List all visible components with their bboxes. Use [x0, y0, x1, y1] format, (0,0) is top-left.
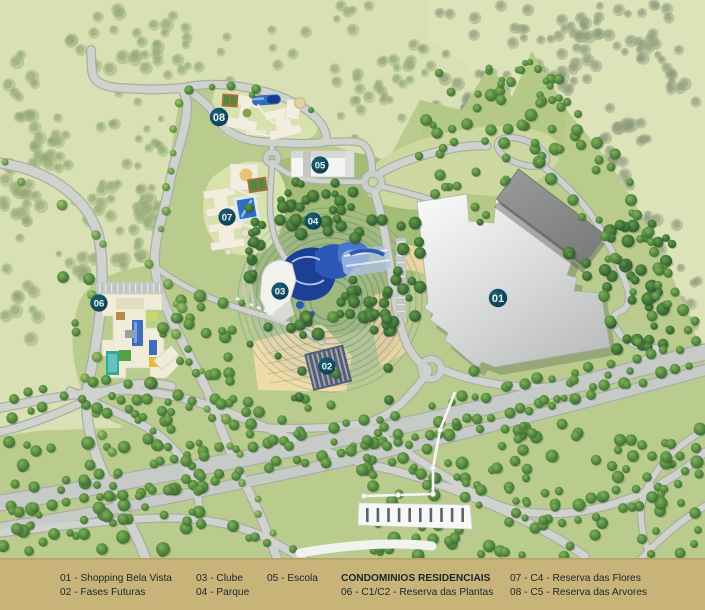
- svg-text:02: 02: [322, 361, 333, 372]
- svg-text:01: 01: [492, 293, 504, 305]
- svg-text:08 - C5 - Reserva das Arvores: 08 - C5 - Reserva das Arvores: [510, 587, 647, 598]
- svg-text:CONDOMINIOS RESIDENCIAIS: CONDOMINIOS RESIDENCIAIS: [341, 573, 491, 584]
- svg-text:03: 03: [275, 286, 286, 297]
- svg-text:06: 06: [94, 298, 105, 309]
- svg-text:07: 07: [222, 212, 233, 223]
- svg-text:05: 05: [315, 160, 326, 171]
- svg-text:07 - C4 - Reserva das Flores: 07 - C4 - Reserva das Flores: [510, 573, 641, 584]
- svg-text:04: 04: [308, 216, 319, 227]
- svg-text:01 - Shopping Bela Vista: 01 - Shopping Bela Vista: [60, 573, 172, 584]
- svg-text:06 - C1/C2 - Reserva das Plant: 06 - C1/C2 - Reserva das Plantas: [341, 587, 493, 598]
- svg-text:05 - Escola: 05 - Escola: [267, 573, 318, 584]
- svg-text:08: 08: [213, 112, 225, 124]
- svg-text:04 - Parque: 04 - Parque: [196, 587, 250, 598]
- svg-text:03 - Clube: 03 - Clube: [196, 573, 243, 584]
- svg-text:02 - Fases Futuras: 02 - Fases Futuras: [60, 587, 146, 598]
